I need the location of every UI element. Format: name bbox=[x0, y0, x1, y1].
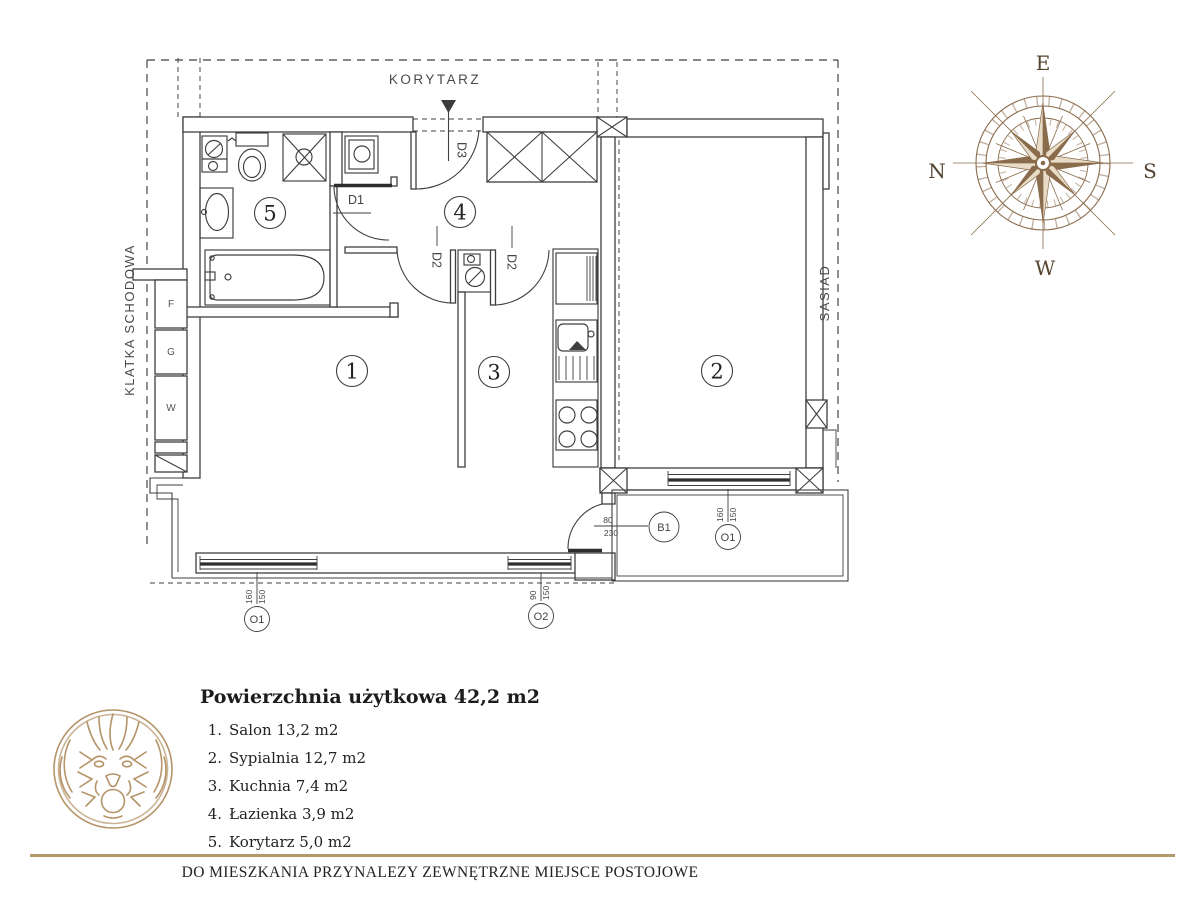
lion-logo-icon bbox=[54, 710, 172, 828]
shower-icon bbox=[283, 134, 326, 181]
room-list-number: 4. bbox=[200, 805, 222, 823]
stairwell-label: KLATKA SCHODOWA bbox=[122, 244, 137, 396]
room-number-4: 4 bbox=[453, 201, 466, 225]
door-label-d2: D2 bbox=[430, 252, 444, 268]
stairwell-shafts: F G W bbox=[133, 269, 187, 472]
room-list-number: 2. bbox=[200, 749, 222, 767]
door-label-d2: D2 bbox=[505, 254, 519, 270]
window-o1-bedroom: 160 150 O1 bbox=[668, 471, 790, 550]
stove-icon bbox=[556, 400, 597, 450]
room-list-item: 3. Kuchnia 7,4 m2 bbox=[200, 772, 540, 800]
window-o2-salon: 90 150 O2 bbox=[507, 556, 572, 629]
o2-height: 150 bbox=[541, 586, 551, 600]
room-number-1: 1 bbox=[345, 360, 358, 384]
door-d1: D1 bbox=[333, 186, 392, 241]
room-list-label: Kuchnia 7,4 m2 bbox=[229, 777, 348, 795]
entrance-door-d3: D3 bbox=[411, 100, 483, 189]
area-legend: Powierzchnia użytkowa 42,2 m2 1. Salon 1… bbox=[200, 686, 540, 856]
compass-rose-icon: E N S W bbox=[928, 51, 1157, 280]
compass-east: E bbox=[1036, 51, 1051, 75]
legend-title: Powierzchnia użytkowa 42,2 m2 bbox=[200, 686, 540, 708]
room-list-item: 4. Łazienka 3,9 m2 bbox=[200, 800, 540, 828]
kitchen-sink-icon bbox=[556, 320, 597, 382]
o2-label: O2 bbox=[534, 611, 549, 623]
room-list-item: 1. Salon 13,2 m2 bbox=[200, 716, 540, 744]
room-list: 1. Salon 13,2 m2 2. Sypialnia 12,7 m2 3.… bbox=[200, 716, 540, 856]
corridor-label: KORYTARZ bbox=[389, 72, 481, 87]
room-number-3: 3 bbox=[487, 361, 500, 385]
room-list-label: Salon 13,2 m2 bbox=[229, 721, 338, 739]
toilet-icon bbox=[228, 133, 268, 181]
footer-divider bbox=[30, 854, 1175, 857]
sink-icon bbox=[200, 188, 233, 238]
water-heater-icon bbox=[458, 250, 492, 292]
o1b-height: 150 bbox=[728, 508, 738, 522]
floorplan-drawing: F G W bbox=[0, 0, 1200, 910]
room-list-number: 5. bbox=[200, 833, 222, 851]
room-list-item: 5. Korytarz 5,0 m2 bbox=[200, 828, 540, 856]
o1-label: O1 bbox=[250, 614, 265, 626]
compass-west: W bbox=[1035, 256, 1056, 280]
shaft-label-w: W bbox=[166, 403, 176, 414]
compass-south: S bbox=[1143, 159, 1157, 183]
room-list-label: Sypialnia 12,7 m2 bbox=[229, 749, 366, 767]
balcony-door-b1: 80 230 B1 bbox=[568, 504, 679, 551]
compass-north: N bbox=[928, 159, 946, 183]
b1-height: 230 bbox=[604, 528, 618, 538]
b1-label: B1 bbox=[657, 522, 670, 534]
room-list-number: 1. bbox=[200, 721, 222, 739]
floorplan-page: F G W bbox=[0, 0, 1200, 910]
washing-machine-icon bbox=[202, 136, 227, 172]
room-number-2: 2 bbox=[710, 360, 723, 384]
door-label-d1: D1 bbox=[348, 193, 364, 207]
room-list-number: 3. bbox=[200, 777, 222, 795]
bathtub-icon bbox=[205, 250, 330, 305]
o2-width: 90 bbox=[528, 590, 538, 600]
room-list-label: Łazienka 3,9 m2 bbox=[229, 805, 354, 823]
o1b-width: 160 bbox=[715, 508, 725, 522]
bathroom-fixtures bbox=[200, 133, 378, 305]
room-list-label: Korytarz 5,0 m2 bbox=[229, 833, 352, 851]
door-d2-salon: D2 bbox=[397, 226, 456, 303]
appliance-icon bbox=[345, 136, 378, 173]
o1b-label: O1 bbox=[721, 532, 736, 544]
shaft-label-g: G bbox=[167, 347, 175, 358]
door-d2-kitchen: D2 bbox=[491, 226, 550, 305]
door-label-d3: D3 bbox=[455, 142, 469, 158]
kitchen-fixtures bbox=[458, 249, 598, 467]
fridge-icon bbox=[556, 253, 597, 304]
room-number-5: 5 bbox=[263, 202, 276, 226]
room-list-item: 2. Sypialnia 12,7 m2 bbox=[200, 744, 540, 772]
o1-height: 150 bbox=[257, 590, 267, 604]
o1-width: 160 bbox=[244, 590, 254, 604]
built-in-wardrobe bbox=[487, 132, 597, 182]
b1-width: 80 bbox=[603, 515, 613, 525]
footer-note: DO MIESZKANIA PRZYNALEZY ZEWNĘTRZNE MIEJ… bbox=[160, 864, 720, 882]
neighbor-label: SASIAD bbox=[817, 265, 832, 322]
shaft-label-f: F bbox=[168, 299, 174, 310]
window-o1-salon: 160 150 O1 bbox=[199, 556, 318, 632]
